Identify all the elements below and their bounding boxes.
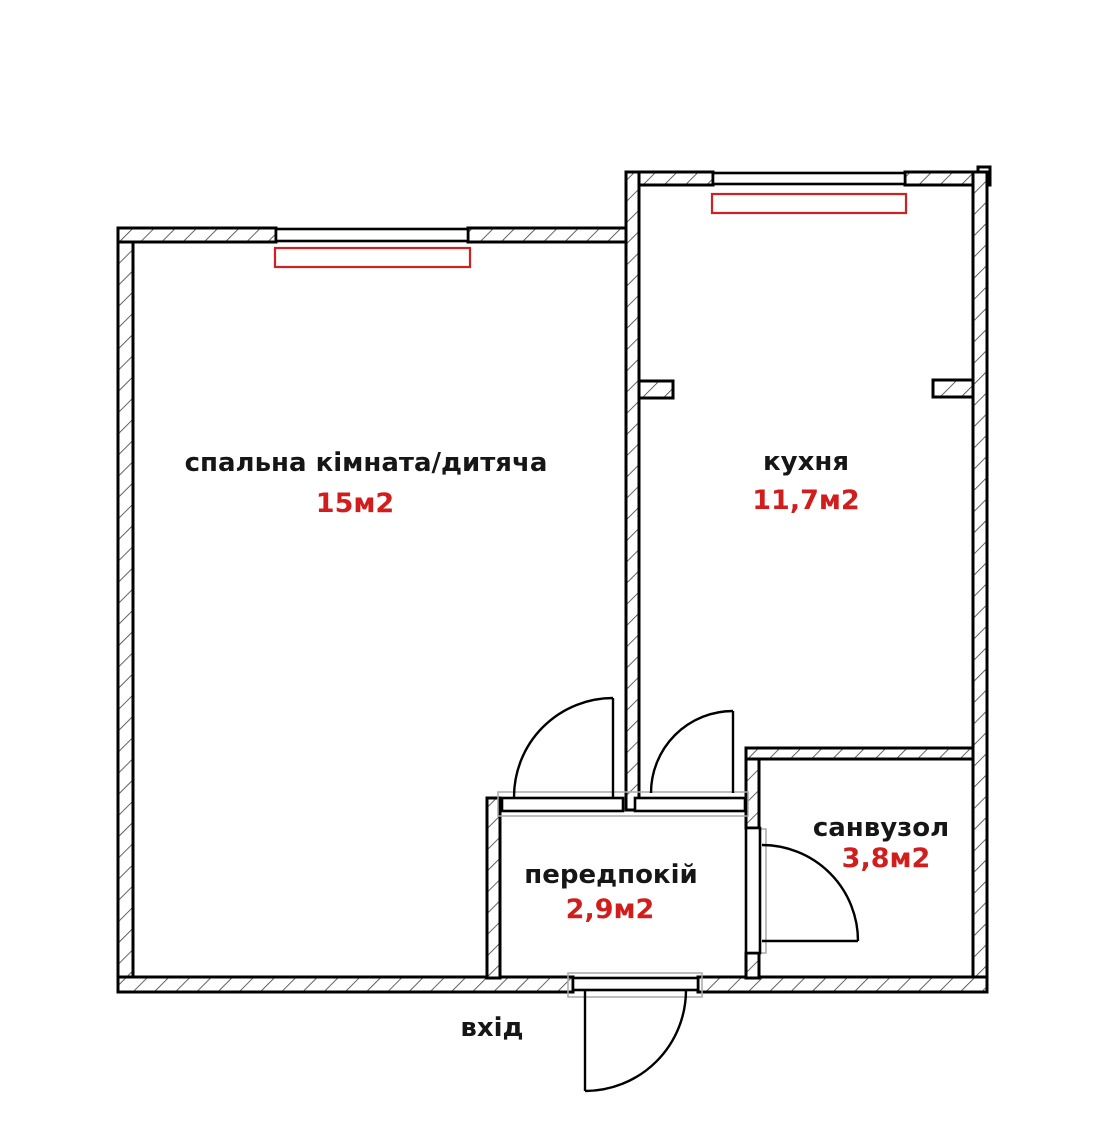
room-area-kitchen: 11,7м2 — [752, 485, 859, 516]
bedroom-radiator — [275, 248, 470, 267]
floor-plan-svg: спальна кімната/дитяча 15м2 кухня 11,7м2… — [0, 0, 1112, 1134]
bedroom-window — [276, 229, 468, 241]
wall-pilaster-left — [639, 381, 673, 398]
floor-plan: спальна кімната/дитяча 15м2 кухня 11,7м2… — [0, 0, 1112, 1134]
wall-bottom-left — [118, 977, 573, 992]
kitchen-window — [713, 173, 905, 184]
room-label-bathroom: санвузол — [813, 813, 949, 843]
labels-group: спальна кімната/дитяча 15м2 кухня 11,7м2… — [185, 447, 950, 1043]
wall-hallway-bathroom-lower — [746, 953, 759, 978]
entrance-door-sill — [573, 978, 698, 990]
wall-left — [118, 228, 133, 992]
wall-bedroom-top-left — [118, 228, 276, 242]
wall-pilaster-right — [933, 380, 973, 397]
wall-bedroom-top-right — [468, 228, 626, 242]
entrance-label: вхід — [460, 1013, 523, 1043]
wall-bottom-right — [698, 977, 987, 992]
room-label-bedroom: спальна кімната/дитяча — [185, 448, 548, 478]
room-area-bathroom: 3,8м2 — [842, 843, 931, 874]
room-label-kitchen: кухня — [763, 447, 849, 477]
wall-bathroom-top — [746, 748, 973, 759]
kitchen-door-swing — [651, 711, 733, 793]
bedroom-door-swing — [514, 698, 613, 797]
room-area-hallway: 2,9м2 — [566, 894, 655, 925]
entrance-door-swing — [585, 990, 686, 1091]
room-label-hallway: передпокій — [524, 860, 697, 890]
wall-bedroom-kitchen-divider — [626, 172, 639, 810]
room-area-bedroom: 15м2 — [316, 488, 394, 519]
bedroom-door-sill — [502, 798, 623, 811]
wall-hallway-left — [487, 798, 500, 978]
wall-right — [973, 172, 987, 992]
kitchen-radiator — [712, 194, 906, 213]
kitchen-door-sill — [635, 798, 745, 811]
bathroom-door-sill — [746, 828, 760, 953]
